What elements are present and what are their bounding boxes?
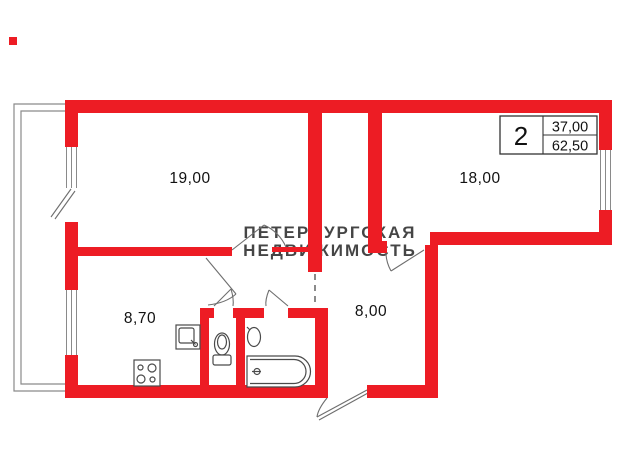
walls — [9, 37, 612, 398]
fixtures — [134, 325, 311, 387]
washbasin-icon — [247, 327, 261, 347]
floor-plan-drawing: ПЕТЕРБУРГСКАЯ НЕДВИЖИМОСТЬ — [0, 0, 635, 476]
watermark-line1: ПЕТЕРБУРГСКАЯ — [244, 223, 417, 242]
balcony-outer-line — [14, 104, 65, 391]
left-wall-middle — [65, 222, 78, 290]
hall-area-label: 8,00 — [355, 303, 387, 320]
window-living-room — [67, 147, 77, 188]
right-wall-upper — [599, 100, 612, 150]
stove-icon — [134, 360, 160, 386]
strip-bedroom-divider-foot — [368, 241, 387, 253]
floor-plan-page: ПЕТЕРБУРГСКАЯ НЕДВИЖИМОСТЬ — [0, 0, 635, 476]
balcony-outline — [14, 104, 65, 391]
bath-door-swing — [266, 290, 288, 306]
toilet-icon — [213, 333, 231, 365]
kitchen-top-wall — [78, 247, 232, 256]
bedroom-area-label: 18,00 — [459, 170, 500, 187]
door-lintel — [272, 247, 308, 252]
info-table: 2 37,00 62,50 — [500, 116, 597, 155]
watermark-line2: НЕДВИЖИМОСТЬ — [243, 241, 417, 260]
strip-bedroom-divider-wall — [368, 100, 382, 241]
kitchen-right-wall — [200, 310, 209, 398]
left-wall-upper — [65, 100, 78, 147]
balcony-inner-line — [21, 111, 65, 384]
balcony-door-swing — [51, 189, 75, 219]
top-wall — [65, 100, 612, 113]
bottom-wall-right — [367, 385, 438, 398]
info-table-rooms-count: 2 — [514, 121, 528, 151]
bedroom-bottom-wall — [430, 232, 612, 245]
info-table-total-area: 62,50 — [552, 139, 588, 155]
bath-right-wall — [315, 308, 328, 398]
living-room-area-label: 19,00 — [169, 170, 210, 187]
watermark: ПЕТЕРБУРГСКАЯ НЕДВИЖИМОСТЬ — [243, 223, 417, 260]
wc-top-wall-a — [200, 308, 214, 318]
lobby-door-swing — [206, 258, 236, 305]
info-table-living-area: 37,00 — [552, 120, 588, 136]
wc-bath-divider-wall — [236, 318, 245, 388]
window-kitchen — [67, 290, 77, 355]
window-bedroom — [601, 150, 611, 210]
kitchen-sink-icon — [176, 325, 200, 349]
kitchen-area-label: 8,70 — [124, 310, 156, 327]
bathtub-icon — [247, 356, 311, 387]
hall-right-wall — [425, 245, 438, 398]
living-strip-divider-wall — [308, 100, 322, 272]
wc-top-wall-b — [233, 308, 264, 318]
logo-mark — [9, 37, 17, 45]
wc-door-swing — [214, 289, 233, 306]
